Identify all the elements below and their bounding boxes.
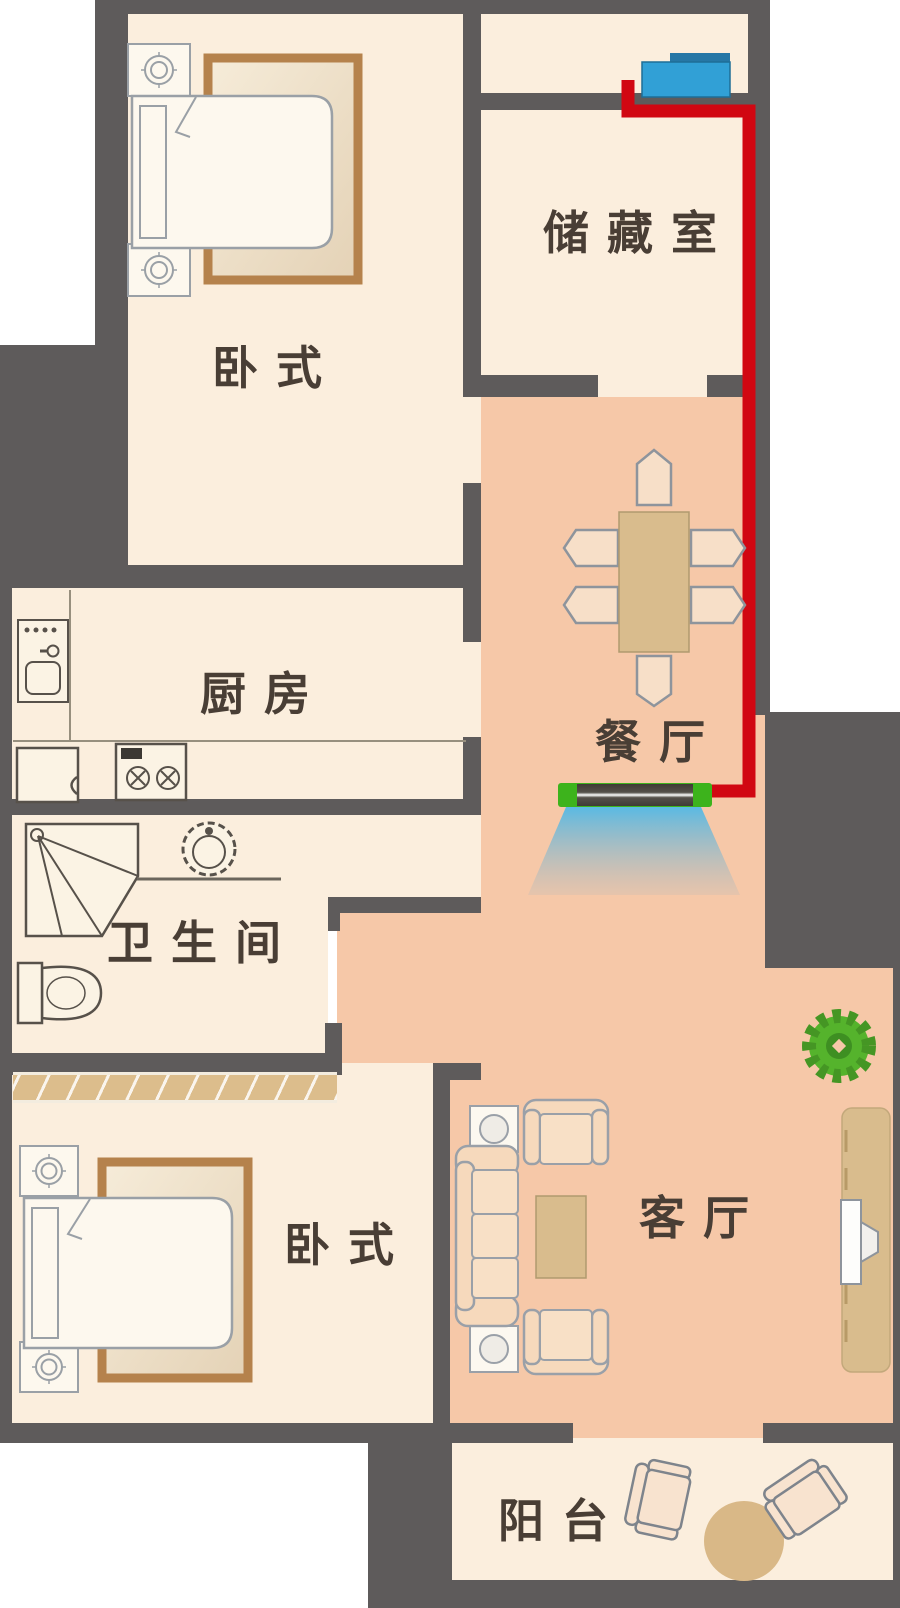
air-curtain-icon [558,783,712,807]
floor-plan: 卧式 储藏室 厨房 餐厅 卫生间 卧式 客厅 阳台 [0,0,900,1608]
control-box-icon [642,53,730,97]
kitchen-sink-icon [18,620,68,702]
armchair-icon [524,1310,608,1374]
nightstand-lamp-icon [20,1342,78,1392]
stove-icon [116,744,186,800]
side-table-lamp-icon [470,1326,518,1372]
double-bed-icon [24,1198,232,1348]
room-label-bedroom-top: 卧式 [194,332,340,398]
room-label-dining: 餐厅 [577,706,723,772]
double-bed-icon [132,96,332,248]
dining-table-icon [619,512,689,652]
armchair-icon [524,1100,608,1164]
refrigerator-icon [17,748,78,802]
room-label-bedroom-bottom: 卧式 [266,1209,412,1275]
nightstand-lamp-icon [20,1146,78,1196]
coffee-table-icon [536,1196,586,1278]
washbasin-icon [183,823,235,875]
potted-plant-icon [809,1016,869,1076]
room-label-living: 客厅 [621,1182,767,1248]
nightstand-lamp-icon [128,244,190,296]
room-label-storage: 储藏室 [525,197,735,263]
nightstand-lamp-icon [128,44,190,96]
balcony-chair-icon [623,1457,693,1541]
sofa-icon [456,1146,518,1326]
room-label-kitchen: 厨房 [182,658,328,724]
room-label-balcony: 阳台 [480,1485,626,1551]
room-label-bathroom: 卫生间 [89,907,299,973]
furniture-layer [0,0,900,1608]
airflow-icon [528,807,740,895]
